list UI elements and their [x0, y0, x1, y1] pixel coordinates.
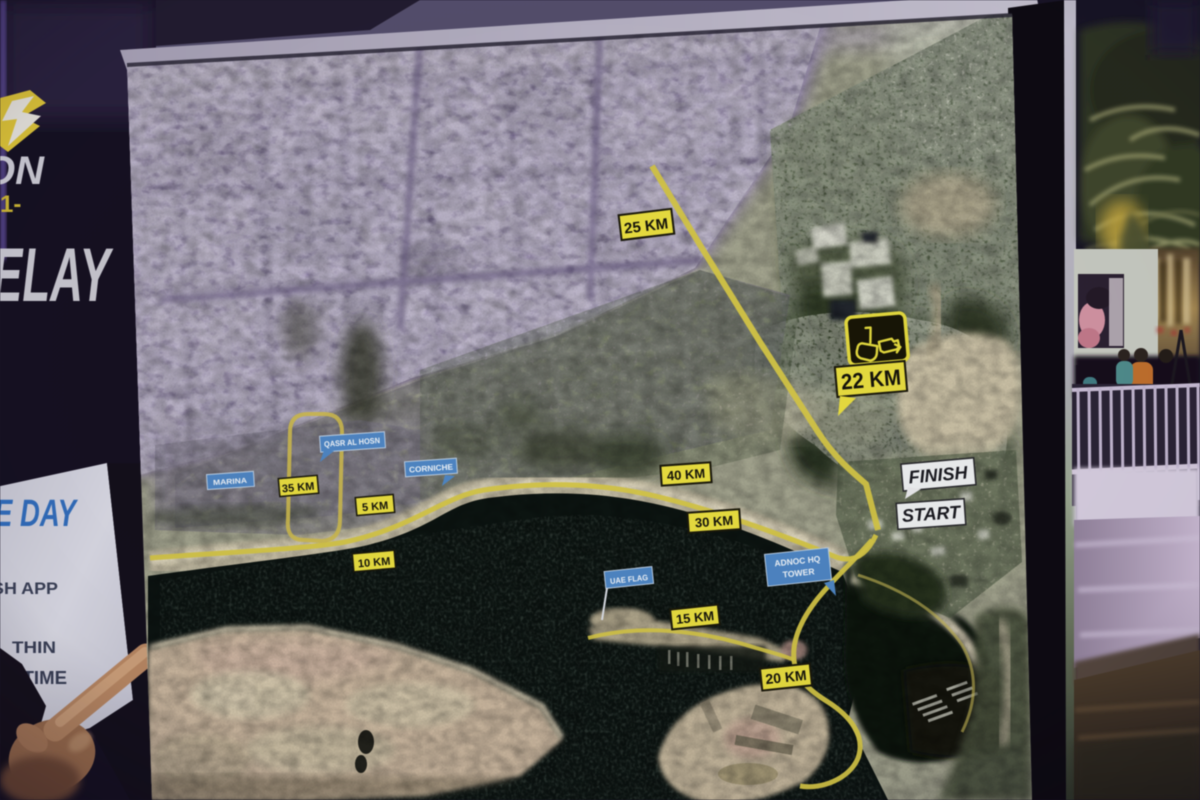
svg-text:ON: ON: [0, 149, 45, 193]
svg-text:THIN: THIN: [12, 638, 56, 657]
svg-text:5 KM: 5 KM: [362, 500, 389, 514]
svg-text:SH APP: SH APP: [0, 579, 58, 598]
svg-text:START: START: [901, 502, 963, 526]
svg-text:ELAY: ELAY: [0, 233, 114, 318]
svg-text:E DAY: E DAY: [0, 493, 79, 535]
svg-text:-1-: -1-: [0, 191, 21, 218]
svg-text:22 KM: 22 KM: [840, 364, 902, 394]
svg-text:40 KM: 40 KM: [666, 466, 705, 484]
svg-text:30 KM: 30 KM: [694, 513, 733, 531]
